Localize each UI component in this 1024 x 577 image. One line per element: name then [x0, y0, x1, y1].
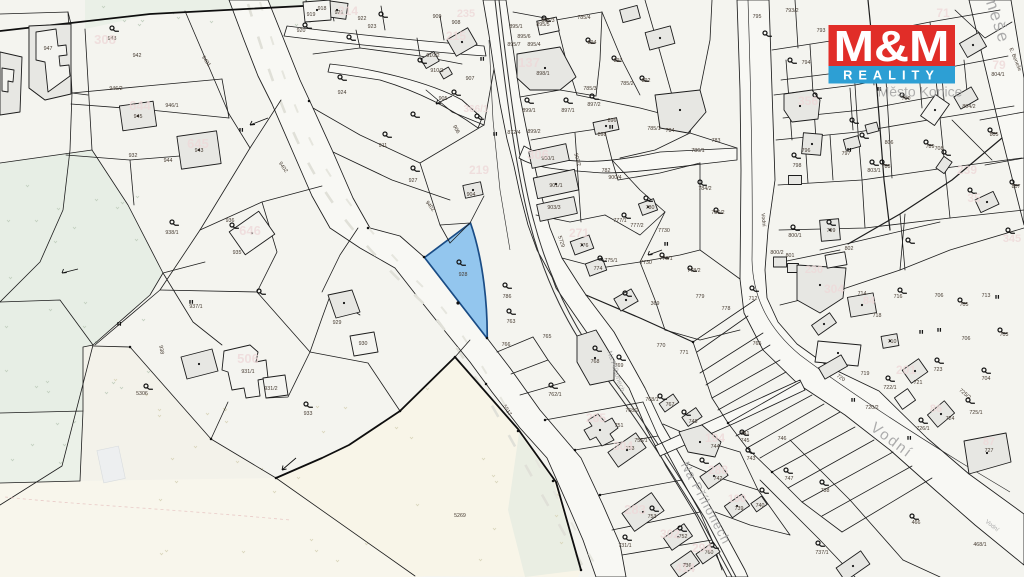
svg-text:786: 786	[503, 294, 512, 300]
svg-text:927: 927	[409, 178, 418, 184]
svg-text:895/1: 895/1	[509, 24, 522, 30]
svg-text:308: 308	[94, 32, 116, 47]
svg-text:302: 302	[660, 527, 680, 541]
svg-text:751: 751	[615, 423, 624, 429]
svg-text:271: 271	[569, 226, 589, 240]
svg-text:731/1: 731/1	[618, 543, 631, 549]
svg-text:935: 935	[233, 250, 242, 256]
svg-text:777/2: 777/2	[630, 223, 643, 229]
svg-text:788: 788	[882, 164, 891, 170]
svg-text:899/2: 899/2	[527, 129, 540, 135]
svg-text:724: 724	[946, 416, 955, 422]
svg-text:782: 782	[602, 168, 611, 174]
svg-text:910/1: 910/1	[430, 68, 443, 74]
svg-text:708: 708	[935, 146, 944, 152]
svg-text:740: 740	[756, 503, 765, 509]
svg-text:727: 727	[985, 448, 994, 454]
svg-text:779: 779	[696, 294, 705, 300]
svg-text:768/2: 768/2	[625, 408, 638, 414]
svg-text:468/1: 468/1	[973, 542, 986, 548]
svg-text:922: 922	[358, 16, 367, 22]
svg-text:919: 919	[307, 12, 316, 18]
svg-text:931/2: 931/2	[264, 386, 277, 392]
svg-text:923: 923	[368, 24, 377, 30]
svg-text:705: 705	[960, 302, 969, 308]
svg-text:718: 718	[873, 313, 882, 319]
svg-text:645: 645	[187, 136, 209, 151]
svg-text:Vodní: Vodní	[759, 213, 766, 228]
svg-text:780: 780	[646, 205, 655, 211]
svg-text:895/6: 895/6	[517, 34, 530, 40]
svg-text:905: 905	[439, 96, 448, 102]
svg-text:366/1: 366/1	[463, 104, 488, 115]
svg-text:899/1: 899/1	[522, 108, 535, 114]
svg-text:924: 924	[338, 90, 347, 96]
svg-text:802: 802	[845, 246, 854, 252]
svg-text:908: 908	[452, 20, 461, 26]
svg-text:784: 784	[666, 128, 675, 134]
svg-text:5306: 5306	[136, 391, 148, 397]
svg-text:REALITY: REALITY	[843, 68, 940, 83]
svg-text:235: 235	[457, 8, 475, 20]
svg-text:79: 79	[992, 58, 1006, 72]
svg-text:936: 936	[226, 218, 235, 224]
svg-text:746: 746	[778, 436, 787, 442]
svg-text:713: 713	[982, 293, 991, 299]
svg-text:414: 414	[675, 561, 695, 575]
svg-text:466: 466	[912, 520, 921, 526]
svg-text:230: 230	[805, 264, 823, 276]
svg-text:753: 753	[648, 514, 657, 520]
svg-text:765: 765	[753, 341, 762, 347]
svg-text:804/2: 804/2	[962, 104, 975, 110]
svg-text:723: 723	[934, 367, 943, 373]
svg-text:897/2: 897/2	[587, 102, 600, 108]
svg-text:900/4: 900/4	[608, 175, 621, 181]
svg-text:897/1: 897/1	[561, 108, 574, 114]
svg-text:895/4: 895/4	[527, 42, 540, 48]
svg-text:755/1: 755/1	[634, 438, 647, 444]
svg-text:712: 712	[749, 296, 758, 302]
svg-text:945: 945	[134, 114, 143, 120]
svg-text:726/1: 726/1	[916, 426, 929, 432]
svg-text:283: 283	[624, 502, 646, 517]
svg-text:786/1: 786/1	[691, 148, 704, 154]
svg-text:931/1: 931/1	[241, 369, 254, 375]
svg-text:285: 285	[586, 411, 606, 425]
svg-text:777/1: 777/1	[613, 218, 626, 224]
svg-text:778: 778	[722, 306, 731, 312]
svg-text:720/2: 720/2	[865, 405, 878, 411]
svg-text:793/2: 793/2	[785, 8, 798, 14]
svg-text:929: 929	[333, 320, 342, 326]
svg-text:7730: 7730	[658, 228, 670, 234]
svg-text:86: 86	[930, 403, 942, 415]
svg-text:719: 719	[861, 371, 870, 377]
svg-text:893: 893	[614, 58, 623, 64]
svg-text:793: 793	[817, 28, 826, 34]
svg-text:765: 765	[543, 334, 552, 340]
svg-text:137: 137	[518, 55, 540, 70]
svg-text:239: 239	[957, 163, 977, 177]
svg-text:938/1: 938/1	[165, 230, 178, 236]
svg-text:806: 806	[885, 140, 894, 146]
svg-text:786/2: 786/2	[711, 210, 724, 216]
svg-text:767: 767	[666, 402, 675, 408]
svg-text:942: 942	[133, 53, 142, 59]
svg-text:910/2: 910/2	[426, 53, 439, 59]
svg-text:771: 771	[680, 350, 689, 356]
svg-text:895/7: 895/7	[507, 42, 520, 48]
svg-text:219: 219	[469, 163, 489, 177]
svg-text:795: 795	[753, 14, 762, 20]
svg-text:762/1: 762/1	[548, 392, 561, 398]
svg-text:928: 928	[459, 272, 468, 278]
svg-text:937/1: 937/1	[189, 304, 202, 310]
svg-text:747: 747	[785, 476, 794, 482]
svg-text:722/1: 722/1	[883, 385, 896, 391]
svg-text:903/3: 903/3	[547, 205, 560, 211]
svg-text:704: 704	[982, 376, 991, 382]
svg-text:304: 304	[824, 282, 844, 296]
svg-text:369: 369	[651, 301, 660, 307]
svg-text:71: 71	[936, 6, 950, 20]
svg-text:5269: 5269	[454, 513, 466, 519]
svg-text:800/2: 800/2	[770, 250, 783, 256]
svg-text:872/4: 872/4	[507, 130, 520, 136]
svg-text:800/1: 800/1	[788, 233, 801, 239]
svg-text:215: 215	[446, 29, 466, 43]
svg-text:710: 710	[888, 339, 897, 345]
svg-text:201: 201	[896, 363, 916, 377]
svg-text:946/1: 946/1	[165, 103, 178, 109]
svg-text:904: 904	[467, 192, 476, 198]
svg-text:644: 644	[129, 98, 151, 113]
svg-text:716: 716	[894, 294, 903, 300]
svg-text:807: 807	[1012, 184, 1021, 190]
svg-text:738: 738	[821, 488, 830, 494]
svg-text:794: 794	[802, 60, 811, 66]
svg-text:778/2: 778/2	[687, 268, 700, 274]
svg-text:901/1: 901/1	[549, 183, 562, 189]
svg-text:768: 768	[591, 359, 600, 365]
svg-text:907: 907	[466, 76, 475, 82]
svg-text:804/1: 804/1	[991, 72, 1004, 78]
svg-text:737/1: 737/1	[815, 550, 828, 556]
svg-text:796: 796	[802, 148, 811, 154]
svg-text:190: 190	[728, 493, 746, 505]
svg-text:M&M: M&M	[834, 21, 950, 70]
svg-text:909: 909	[433, 14, 442, 20]
svg-text:741: 741	[741, 431, 750, 437]
svg-text:785/2: 785/2	[620, 81, 633, 87]
svg-text:35: 35	[967, 191, 981, 205]
svg-text:799: 799	[827, 228, 836, 234]
svg-text:911: 911	[379, 143, 387, 149]
svg-text:703: 703	[1000, 332, 1009, 338]
svg-text:345: 345	[1003, 233, 1021, 245]
svg-text:745: 745	[741, 438, 750, 444]
svg-text:288: 288	[708, 463, 728, 477]
svg-text:776: 776	[580, 243, 589, 249]
svg-text:706: 706	[962, 336, 971, 342]
svg-text:721: 721	[914, 380, 923, 386]
svg-text:739: 739	[735, 506, 744, 512]
svg-text:798: 798	[793, 163, 802, 169]
svg-text:801: 801	[786, 253, 795, 259]
svg-text:770: 770	[657, 343, 666, 349]
svg-text:930: 930	[359, 341, 368, 347]
svg-text:774: 774	[594, 266, 603, 272]
svg-text:797: 797	[842, 151, 851, 157]
svg-text:918: 918	[318, 6, 327, 12]
svg-text:7730: 7730	[640, 260, 652, 266]
svg-text:646: 646	[239, 223, 261, 238]
svg-text:356: 356	[798, 94, 818, 108]
svg-text:785/1: 785/1	[647, 126, 660, 132]
svg-text:946/2: 946/2	[109, 86, 122, 92]
svg-text:947: 947	[44, 46, 53, 52]
svg-text:898/1: 898/1	[536, 71, 549, 77]
svg-text:789: 789	[926, 144, 935, 150]
svg-text:506: 506	[237, 351, 259, 366]
svg-text:306: 306	[527, 147, 549, 162]
svg-text:892: 892	[642, 78, 651, 84]
svg-text:785/3: 785/3	[583, 86, 596, 92]
svg-text:944: 944	[164, 158, 173, 164]
svg-text:895/3: 895/3	[541, 18, 554, 24]
svg-text:894: 894	[588, 40, 597, 46]
svg-text:748: 748	[689, 419, 698, 425]
svg-text:896: 896	[608, 118, 617, 124]
svg-text:763: 763	[507, 319, 516, 325]
svg-text:779/1: 779/1	[659, 256, 672, 262]
svg-text:706: 706	[935, 293, 944, 299]
svg-text:932: 932	[129, 153, 138, 159]
svg-text:725/1: 725/1	[969, 410, 982, 416]
svg-text:214: 214	[338, 4, 358, 18]
svg-text:933: 933	[304, 411, 313, 417]
svg-text:84: 84	[863, 295, 876, 307]
svg-text:768/1: 768/1	[645, 397, 658, 403]
svg-text:304: 304	[613, 439, 633, 453]
svg-text:805: 805	[990, 132, 999, 138]
svg-text:294: 294	[692, 541, 712, 555]
svg-text:898: 898	[598, 132, 607, 138]
svg-text:803/1: 803/1	[867, 168, 880, 174]
svg-text:920: 920	[297, 28, 306, 34]
svg-text:785/4: 785/4	[577, 15, 590, 21]
svg-text:743: 743	[747, 456, 756, 462]
svg-text:194: 194	[705, 431, 725, 445]
svg-text:784/2: 784/2	[698, 186, 711, 192]
svg-text:775/1: 775/1	[604, 258, 617, 264]
svg-text:766: 766	[502, 342, 511, 348]
svg-text:87: 87	[983, 436, 995, 448]
svg-text:Město Konice: Město Konice	[878, 84, 963, 100]
svg-text:783: 783	[712, 138, 721, 144]
